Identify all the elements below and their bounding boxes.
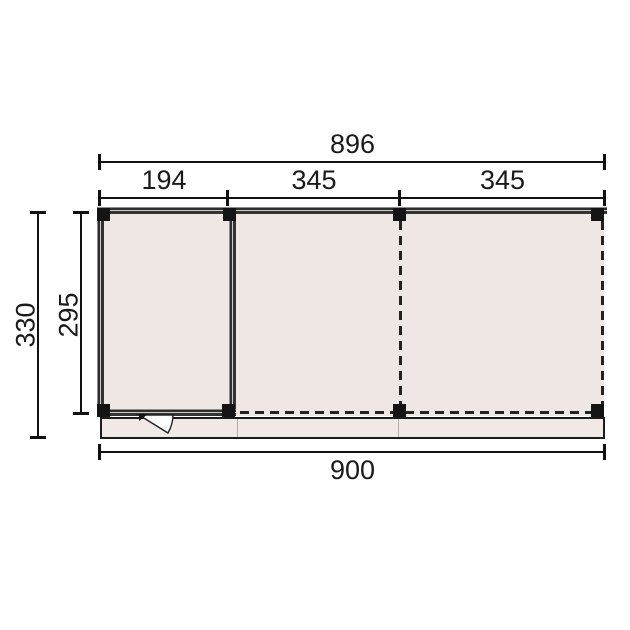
dim-tick <box>30 436 46 439</box>
dim-bottom-total-label: 900 <box>100 456 605 484</box>
dim-tick <box>603 190 606 206</box>
dim-bottom-total-line <box>100 451 605 453</box>
dim-tick <box>226 190 229 206</box>
post-front-mid-left <box>222 404 235 417</box>
dim-tick <box>73 211 89 214</box>
dim-tick <box>30 211 46 214</box>
floor-area <box>100 210 604 416</box>
door-swing-icon <box>132 412 178 438</box>
dim-segment-2-label: 345 <box>228 166 400 194</box>
post-front-mid-right <box>393 404 406 417</box>
post-back-mid-right <box>393 208 406 221</box>
right-edge-dashed-line <box>601 221 604 404</box>
back-wall <box>97 207 607 214</box>
bay-divider-dashed-line <box>399 221 402 404</box>
room-left-wall <box>97 210 104 416</box>
dim-segments-line <box>100 197 605 199</box>
room-right-wall <box>229 210 236 416</box>
post-back-right <box>591 208 604 221</box>
decking-seam <box>237 419 238 437</box>
dim-side-inner-line <box>80 212 82 415</box>
dim-top-total-label: 896 <box>100 130 605 158</box>
post-front-left <box>97 404 110 417</box>
post-front-right <box>591 404 604 417</box>
post-back-left <box>97 208 110 221</box>
dim-side-inner-label: 295 <box>55 292 83 337</box>
dim-segment-1-label: 194 <box>100 166 228 194</box>
dim-segment-3-label: 345 <box>400 166 605 194</box>
front-edge-dashed-line <box>240 411 602 414</box>
decking-seam <box>398 419 399 437</box>
dim-top-total-line <box>100 161 605 163</box>
post-back-mid-left <box>223 208 236 221</box>
dim-tick <box>398 190 401 206</box>
dim-tick <box>98 190 101 206</box>
dim-tick <box>73 412 89 415</box>
floor-plan-canvas: 896 194 345 345 330 295 <box>0 0 630 630</box>
